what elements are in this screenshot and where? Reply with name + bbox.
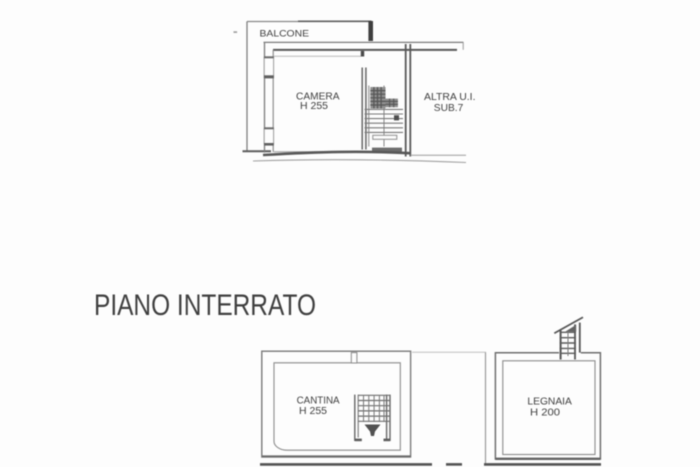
svg-text:H 255: H 255	[299, 406, 327, 417]
svg-text:LEGNAIA: LEGNAIA	[527, 396, 572, 408]
svg-text:H 255: H 255	[300, 101, 328, 112]
svg-text:CANTINA: CANTINA	[297, 395, 340, 407]
svg-text:SUB.7: SUB.7	[434, 102, 464, 114]
svg-text:PIANO INTERRATO: PIANO INTERRATO	[94, 289, 316, 322]
svg-text:ALTRA U.I.: ALTRA U.I.	[424, 91, 476, 103]
svg-text:BALCONE: BALCONE	[260, 29, 310, 40]
svg-text:H 200: H 200	[530, 408, 560, 419]
